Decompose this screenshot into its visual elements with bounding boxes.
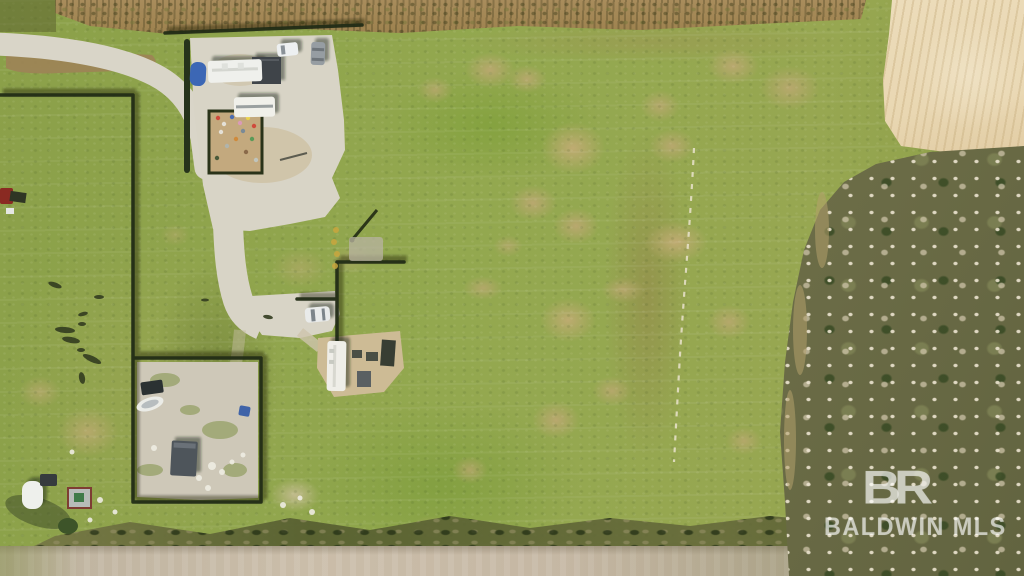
garden-plot: [209, 111, 262, 173]
path-to-camper: [300, 332, 320, 348]
storage-shed: [68, 488, 91, 508]
dashed-track: [674, 148, 694, 462]
aerial-photo: BR BALDWIN MLS: [0, 0, 1024, 576]
red-tractor: [0, 188, 27, 214]
debris-patch: [349, 237, 383, 261]
treeline-trail: [784, 192, 829, 490]
yard-utility-trailer: [170, 440, 198, 476]
pole-shadow: [352, 210, 377, 240]
equipment: [40, 474, 57, 486]
white-tank: [22, 481, 43, 509]
camper-trailer-center: [327, 341, 347, 391]
rv-camper: [208, 59, 263, 83]
gray-car: [311, 42, 326, 65]
bush: [58, 518, 78, 534]
site-features: [0, 0, 1024, 576]
white-car: [304, 306, 330, 323]
pickup-truck: [276, 42, 298, 57]
rv-camper-2: [234, 97, 275, 118]
blue-tank: [189, 62, 206, 87]
shaded-grass-corner: [0, 0, 56, 32]
yard-blue-item: [238, 405, 251, 417]
